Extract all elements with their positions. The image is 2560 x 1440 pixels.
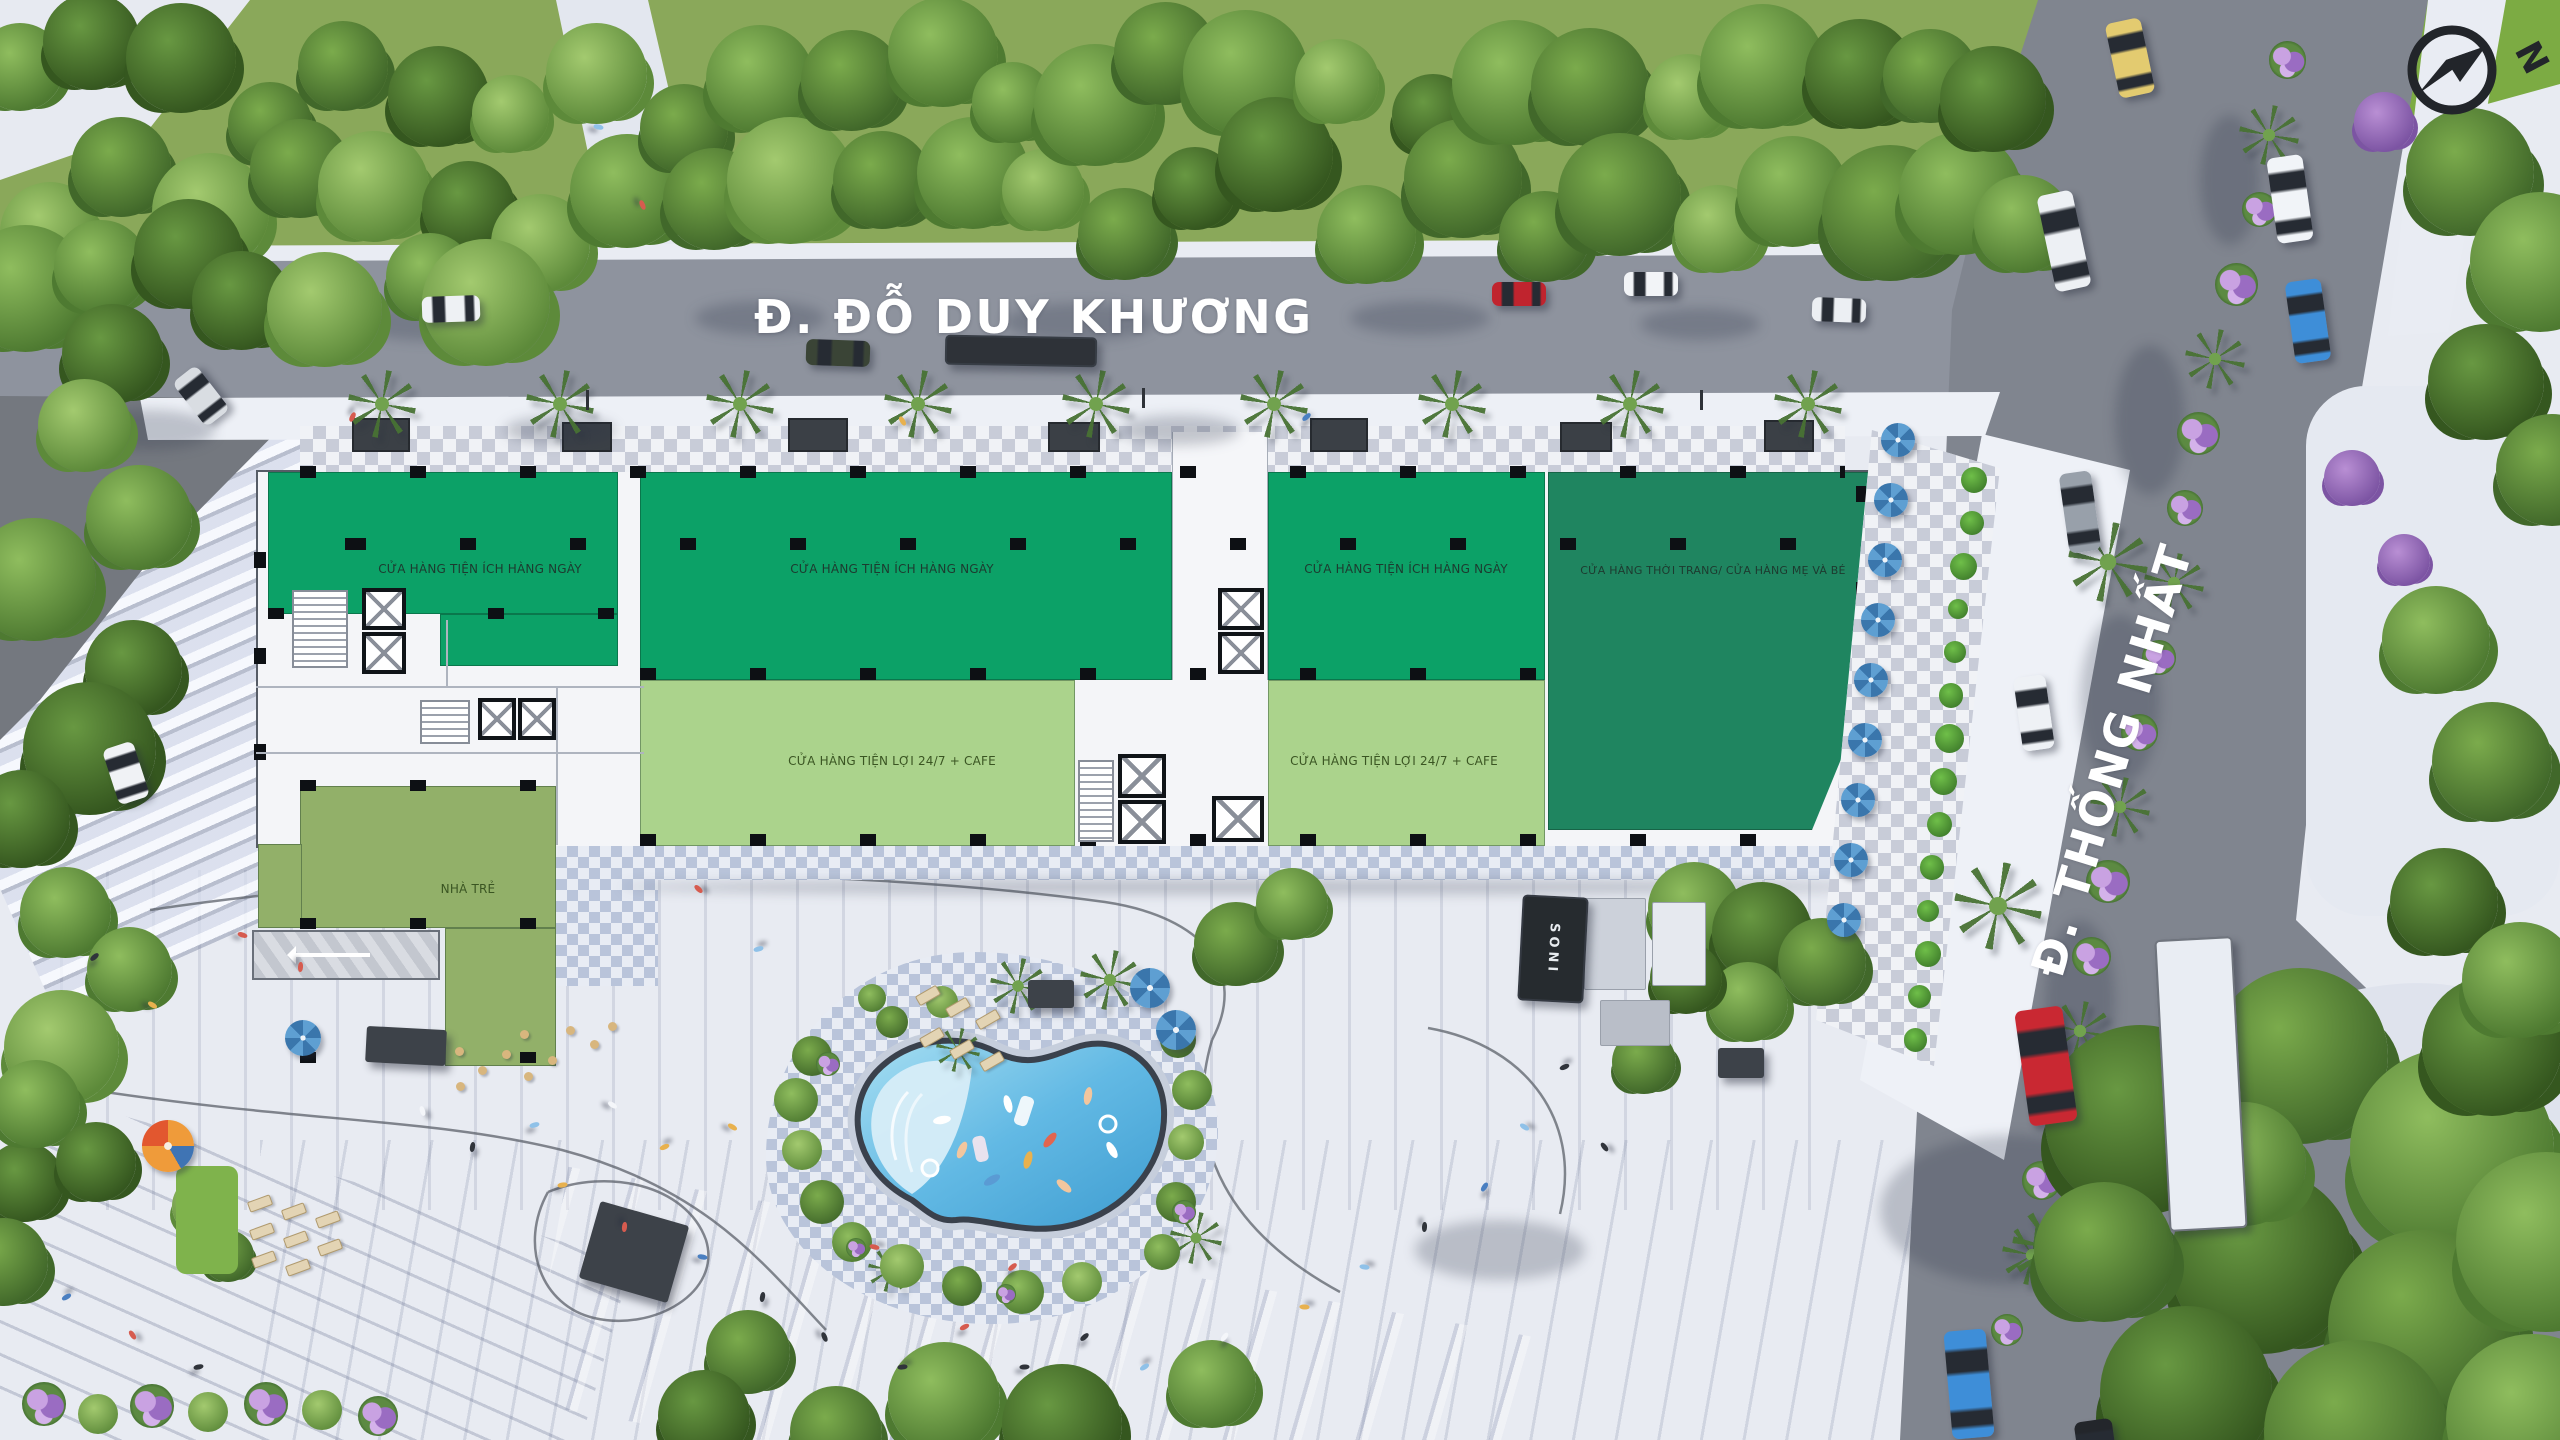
partition-wall bbox=[256, 686, 644, 688]
person bbox=[759, 1292, 766, 1303]
tree bbox=[1295, 39, 1380, 124]
sun-lounger bbox=[247, 1194, 273, 1213]
cafe-table bbox=[548, 1056, 557, 1065]
cafe-table bbox=[590, 1040, 599, 1049]
elevator-core bbox=[362, 632, 406, 674]
tree bbox=[801, 30, 901, 130]
bush bbox=[1948, 599, 1968, 619]
flower-bed bbox=[846, 1238, 866, 1258]
person bbox=[1299, 1304, 1309, 1310]
bush bbox=[782, 1130, 822, 1170]
sun-lounger bbox=[317, 1238, 343, 1257]
palm-tree-icon bbox=[2185, 329, 2245, 389]
bush bbox=[1927, 812, 1952, 837]
light-post bbox=[1700, 390, 1703, 410]
cafe-table bbox=[456, 1082, 465, 1091]
lawn-patch bbox=[176, 1166, 238, 1274]
partition-wall bbox=[556, 688, 558, 845]
container-truck-label: SONI bbox=[1544, 923, 1562, 976]
bush bbox=[1908, 985, 1931, 1008]
tree bbox=[87, 927, 172, 1012]
tree-shadow bbox=[2115, 345, 2185, 495]
container-truck: SONI bbox=[1517, 894, 1588, 1003]
tree bbox=[0, 1142, 64, 1222]
service-structure bbox=[1584, 898, 1646, 990]
sun-lounger bbox=[283, 1230, 309, 1249]
person bbox=[1599, 1142, 1609, 1153]
scenery-layer bbox=[0, 0, 2560, 1440]
car bbox=[2059, 470, 2102, 554]
compass-north-label: N bbox=[2506, 35, 2552, 81]
cafe-table bbox=[524, 1072, 533, 1081]
cafe-table bbox=[502, 1050, 511, 1059]
tree bbox=[2034, 1182, 2174, 1322]
person bbox=[607, 1100, 618, 1110]
kiosk bbox=[1028, 980, 1074, 1008]
cafe-table bbox=[478, 1066, 487, 1075]
tree bbox=[1558, 133, 1681, 256]
person bbox=[1422, 1222, 1428, 1232]
umbrella-icon bbox=[1848, 723, 1882, 757]
tree bbox=[388, 46, 489, 147]
bush bbox=[1904, 1028, 1927, 1051]
tree bbox=[888, 1342, 1000, 1440]
person bbox=[1559, 1063, 1570, 1072]
cafe-table bbox=[455, 1047, 464, 1056]
tree bbox=[1940, 46, 2045, 151]
umbrella-icon bbox=[1841, 783, 1875, 817]
person bbox=[557, 1182, 568, 1188]
person bbox=[469, 1142, 476, 1153]
bush bbox=[1917, 900, 1939, 922]
bush bbox=[1930, 768, 1957, 795]
umbrella-icon bbox=[1827, 903, 1861, 937]
flower-bed bbox=[2269, 41, 2306, 78]
car bbox=[1492, 282, 1546, 306]
elevator-core bbox=[362, 588, 406, 630]
tree bbox=[2432, 702, 2552, 822]
bush bbox=[188, 1392, 228, 1432]
person bbox=[61, 1292, 72, 1301]
umbrella-icon bbox=[1868, 543, 1902, 577]
person bbox=[1139, 1362, 1150, 1372]
palm-tree-icon bbox=[706, 370, 774, 438]
kiosk bbox=[365, 1026, 447, 1066]
bush bbox=[1960, 511, 1984, 535]
palm-tree-icon bbox=[1062, 370, 1130, 438]
flower-bed bbox=[244, 1382, 288, 1426]
sun-lounger bbox=[979, 1051, 1005, 1073]
car bbox=[1624, 272, 1678, 296]
bush bbox=[942, 1266, 982, 1306]
umbrella-icon bbox=[1881, 423, 1915, 457]
tree bbox=[86, 465, 192, 571]
tree-shadow bbox=[1640, 308, 1760, 340]
umbrella-icon bbox=[1874, 483, 1908, 517]
bush bbox=[1944, 641, 1966, 663]
tree bbox=[790, 1386, 882, 1440]
palm-tree-icon bbox=[348, 370, 416, 438]
cafe-table bbox=[520, 1030, 529, 1039]
elevator-core bbox=[1218, 588, 1264, 630]
tree bbox=[56, 1122, 136, 1202]
person bbox=[298, 962, 304, 972]
flower-bed bbox=[816, 1052, 840, 1076]
umbrella-icon bbox=[1130, 968, 1170, 1008]
truck bbox=[2154, 936, 2247, 1232]
umbrella-icon bbox=[1861, 603, 1895, 637]
person bbox=[1019, 1364, 1029, 1370]
palm-tree-icon bbox=[884, 370, 952, 438]
site-plan-rendering: CỬA HÀNG TIỆN ÍCH HÀNG NGÀY CỬA HÀNG TIỆ… bbox=[0, 0, 2560, 1440]
bush bbox=[1062, 1262, 1102, 1302]
flower-bed bbox=[1991, 1314, 2023, 1346]
bush bbox=[1950, 553, 1977, 580]
cafe-table bbox=[608, 1022, 617, 1031]
flower-bed bbox=[358, 1396, 398, 1436]
car bbox=[1812, 297, 1867, 323]
tree bbox=[298, 21, 388, 111]
umbrella-icon bbox=[1156, 1010, 1196, 1050]
street-name-do-duy-khuong: Đ. ĐỖ DUY KHƯƠNG bbox=[754, 290, 1314, 344]
bush bbox=[774, 1078, 818, 1122]
person bbox=[593, 123, 604, 130]
tree bbox=[2324, 450, 2380, 506]
partition-wall bbox=[256, 752, 644, 754]
bush bbox=[78, 1394, 118, 1434]
person bbox=[193, 1363, 204, 1370]
kiosk bbox=[1718, 1048, 1764, 1078]
elevator-core bbox=[1218, 632, 1264, 674]
stair-run bbox=[1078, 760, 1114, 842]
palm-tree-icon bbox=[1774, 370, 1842, 438]
tree-shadow bbox=[1415, 1220, 1585, 1280]
sun-lounger bbox=[315, 1210, 341, 1229]
bush bbox=[880, 1244, 924, 1288]
umbrella-icon bbox=[1834, 843, 1868, 877]
compass-icon: N bbox=[2402, 16, 2552, 126]
tree bbox=[2378, 534, 2430, 586]
person bbox=[1079, 1332, 1090, 1342]
bush bbox=[800, 1180, 844, 1224]
bush bbox=[1961, 467, 1987, 493]
person bbox=[1359, 1264, 1370, 1271]
tree bbox=[472, 75, 549, 152]
tree bbox=[43, 0, 140, 90]
bush bbox=[1915, 941, 1941, 967]
umbrella-icon bbox=[142, 1120, 194, 1172]
person bbox=[820, 1331, 829, 1342]
elevator-core bbox=[1118, 754, 1166, 798]
tree bbox=[318, 131, 429, 242]
car bbox=[2104, 17, 2155, 99]
person bbox=[693, 884, 704, 895]
stair-run bbox=[292, 590, 348, 668]
tree bbox=[1531, 28, 1649, 146]
partition-wall bbox=[446, 620, 448, 688]
car bbox=[422, 295, 481, 323]
palm-tree-icon bbox=[1240, 370, 1308, 438]
tree-shadow bbox=[1120, 415, 1240, 445]
stair-run bbox=[420, 700, 470, 744]
umbrella-icon bbox=[285, 1020, 321, 1056]
flower-bed bbox=[22, 1382, 66, 1426]
person bbox=[419, 1105, 427, 1116]
tree bbox=[833, 131, 931, 229]
person bbox=[959, 1323, 970, 1332]
person bbox=[659, 1143, 670, 1152]
person bbox=[128, 1329, 138, 1340]
bush bbox=[1172, 1070, 1212, 1110]
bush bbox=[1935, 724, 1964, 753]
sun-lounger bbox=[251, 1250, 277, 1269]
light-post bbox=[1142, 388, 1145, 408]
service-structure bbox=[1652, 902, 1706, 986]
bush bbox=[1144, 1234, 1180, 1270]
sun-lounger bbox=[285, 1258, 311, 1277]
tree-shadow bbox=[1350, 301, 1490, 335]
cafe-table bbox=[566, 1026, 575, 1035]
sun-lounger bbox=[281, 1202, 307, 1221]
person bbox=[753, 945, 764, 952]
elevator-core bbox=[518, 698, 556, 740]
palm-tree-icon bbox=[1596, 370, 1664, 438]
bush bbox=[858, 984, 886, 1012]
bush bbox=[1168, 1124, 1204, 1160]
flower-bed bbox=[2177, 412, 2220, 455]
flower-bed bbox=[1172, 1200, 1196, 1224]
tree bbox=[267, 252, 382, 367]
car bbox=[2013, 674, 2055, 752]
car bbox=[2266, 154, 2314, 244]
flower-bed bbox=[2167, 490, 2203, 526]
tree bbox=[0, 518, 96, 642]
service-structure bbox=[1600, 1000, 1670, 1046]
light-post bbox=[586, 390, 589, 410]
person bbox=[697, 1254, 708, 1261]
person bbox=[1480, 1181, 1490, 1192]
tree bbox=[1168, 1340, 1256, 1428]
bush bbox=[1939, 683, 1964, 708]
elevator-core bbox=[478, 698, 516, 740]
tree bbox=[38, 379, 131, 472]
person bbox=[529, 1121, 540, 1128]
tree bbox=[2382, 586, 2490, 694]
tree bbox=[0, 1218, 48, 1306]
kiosk bbox=[579, 1201, 689, 1303]
car bbox=[1943, 1328, 1994, 1439]
bush bbox=[1920, 855, 1945, 880]
flower-bed bbox=[2022, 1161, 2061, 1200]
person bbox=[727, 1122, 738, 1131]
car bbox=[2284, 278, 2331, 364]
sun-lounger bbox=[975, 1009, 1001, 1031]
sun-lounger bbox=[249, 1222, 275, 1241]
palm-tree-icon bbox=[1418, 370, 1486, 438]
umbrella-icon bbox=[1854, 663, 1888, 697]
tree bbox=[546, 23, 647, 124]
tree bbox=[54, 220, 147, 313]
person bbox=[869, 1243, 880, 1250]
person bbox=[237, 931, 248, 939]
palm-tree-icon bbox=[526, 370, 594, 438]
person bbox=[1519, 1122, 1530, 1132]
bush bbox=[876, 1006, 908, 1038]
elevator-core bbox=[1212, 796, 1264, 842]
flower-bed bbox=[996, 1284, 1016, 1304]
elevator-core bbox=[1118, 800, 1166, 844]
bush bbox=[302, 1390, 342, 1430]
tree bbox=[1317, 185, 1416, 284]
tree bbox=[126, 3, 236, 113]
tree bbox=[1256, 868, 1328, 940]
tree bbox=[1002, 1364, 1122, 1440]
flower-bed bbox=[130, 1384, 174, 1428]
flower-bed bbox=[2215, 263, 2258, 306]
